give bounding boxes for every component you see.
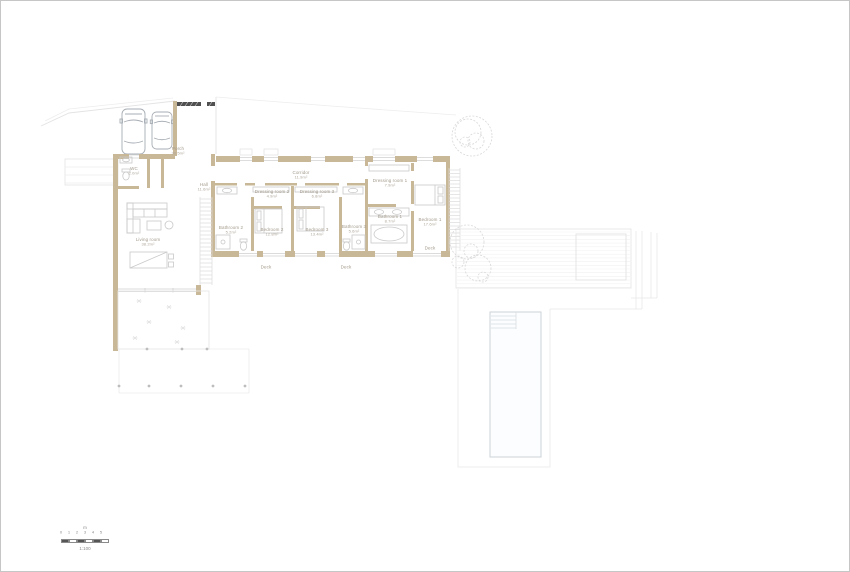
bed-bedroom3	[297, 207, 324, 231]
stairs-west	[200, 197, 212, 285]
walls	[113, 101, 450, 351]
scale-bar-segment	[85, 539, 93, 543]
deck-edge-paths	[550, 231, 657, 309]
tree-icon-north	[452, 116, 492, 156]
scale-unit-label: m	[83, 525, 87, 530]
site-boundary-lines	[41, 97, 456, 154]
scale-bar-segment	[77, 539, 85, 543]
scale-tick: 3	[84, 530, 86, 535]
bed-bedroom1	[415, 185, 445, 205]
scale-bar-segment	[61, 539, 69, 543]
floor-plan-svg	[1, 1, 850, 572]
entry-steps	[65, 159, 118, 185]
scale-tick: 2	[76, 530, 78, 535]
car-icon-2	[150, 112, 173, 149]
bed-bedroom2	[255, 209, 282, 233]
retaining-wall-hatch	[177, 102, 215, 106]
scale-bar-segment	[93, 539, 101, 543]
scale-tick: 1	[68, 530, 70, 535]
scale-tick: 4	[92, 530, 94, 535]
floor-plan-page: Porch30.5m²WC2.0m²Hall11.6m²Corridor11.9…	[0, 0, 850, 572]
pool-basin	[490, 312, 541, 457]
car-icon-1	[120, 109, 147, 154]
deck-boards	[457, 232, 630, 288]
terrace-posts	[118, 348, 247, 388]
windows	[118, 149, 441, 293]
scale-tick: 0	[60, 530, 62, 535]
pool-area	[458, 289, 550, 467]
scale-ratio-label: 1:100	[79, 546, 90, 551]
deck-outline	[456, 229, 631, 288]
terrace-upper	[118, 291, 209, 349]
terrace-lower	[119, 349, 249, 393]
scale-tick: 5	[100, 530, 102, 535]
terrace-plants	[133, 299, 186, 344]
scale-bar-segment	[101, 539, 109, 543]
scale-bar-segment	[69, 539, 77, 543]
